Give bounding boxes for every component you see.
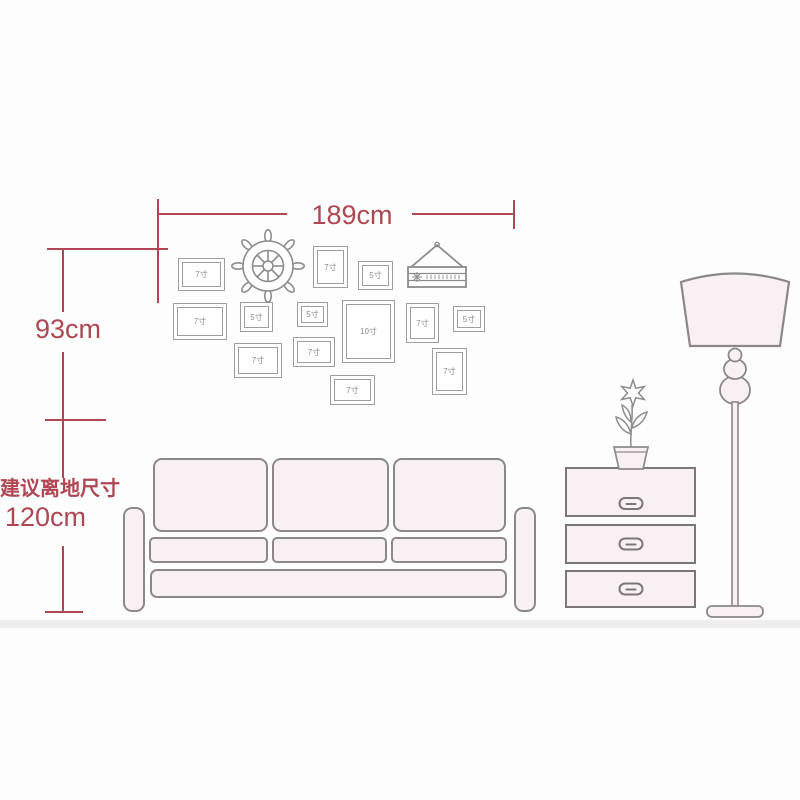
frame-size-label: 7寸 [194,316,206,327]
clearance-dim-line-upper [62,421,64,478]
clearance-dim-tick-bottom [45,611,83,613]
photo-frame-mat: 7寸 [410,307,435,339]
sofa-base [150,569,507,598]
photo-frame: 5寸 [453,306,485,332]
drawer-handle [618,583,643,596]
clearance-dim-line-lower [62,546,64,612]
sofa-back-cushion-left [153,458,268,532]
photo-frame-mat: 7寸 [177,307,223,336]
frame-size-label: 7寸 [308,347,320,358]
width-dim-tick-right [513,200,515,229]
photo-frame: 5寸 [240,302,273,332]
photo-frame-mat: 5寸 [362,265,389,286]
ship-wheel-icon [231,228,305,306]
photo-frame: 7寸 [293,337,335,367]
floor-lamp-icon [675,262,795,622]
floor-line [0,620,800,628]
photo-frame-mat: 5寸 [244,306,269,328]
photo-frame-mat: 7寸 [334,379,371,401]
sofa-back-cushion-middle [272,458,389,532]
photo-frame: 7寸 [234,343,282,378]
floor-clearance-title: 建议离地尺寸 [0,479,128,499]
photo-frame: 7寸 [313,246,348,288]
frame-size-label: 5寸 [369,270,381,281]
photo-frame: 5寸 [358,261,393,290]
potted-flower-icon [600,378,660,473]
photo-frame: 7寸 [178,258,225,291]
sofa-seat-cushion-left [149,537,268,563]
handle-slot [625,543,636,545]
frame-size-label: 7寸 [416,318,428,329]
photo-frame: 7寸 [173,303,227,340]
sofa-armrest-right [514,507,536,612]
frame-size-label: 10寸 [360,326,377,337]
photo-frame-mat: 7寸 [317,250,344,284]
photo-frame: 7寸 [432,348,467,395]
floor-clearance-value: 120cm [5,504,128,531]
width-dimension-label: 189cm [310,202,394,229]
width-dim-line-right [412,213,515,215]
height-dim-tick-top [47,248,168,250]
photo-frame: 7寸 [406,303,439,343]
sofa-back-cushion-right [393,458,506,532]
photo-frame: 10寸 [342,300,395,363]
width-dim-tick-left [157,199,159,303]
frame-size-label: 7寸 [324,262,336,273]
photo-frame-mat: 7寸 [436,352,463,391]
frame-size-label: 5寸 [463,314,475,325]
handle-slot [625,503,636,505]
photo-frame-mat: 7寸 [297,341,331,363]
photo-frame-mat: 7寸 [238,347,278,374]
drawer-handle [618,538,643,551]
photo-frame-mat: 5寸 [301,306,324,323]
frame-size-label: 5寸 [306,309,318,320]
sofa-armrest-left [123,507,145,612]
photo-frame-mat: 10寸 [346,304,391,359]
photo-frame: 7寸 [330,375,375,405]
sofa-seat-cushion-middle [272,537,387,563]
photo-frame-mat: 7寸 [182,262,221,287]
photo-frame-mat: 5寸 [457,310,481,328]
floor-clearance-label: 建议离地尺寸 120cm [0,479,128,531]
width-dim-line-left [159,213,287,215]
frame-size-label: 5寸 [250,312,262,323]
height-dimension-label: 93cm [35,316,101,343]
sofa-seat-cushion-right [391,537,507,563]
frame-size-label: 7寸 [252,355,264,366]
handle-slot [625,588,636,590]
product-dimension-diagram: 189cm 93cm 建议离地尺寸 120cm 7寸7寸5寸7寸5寸5寸10寸7… [0,0,800,800]
hanging-board-icon [404,240,470,292]
frame-size-label: 7寸 [346,385,358,396]
height-dim-line-lower [62,352,64,420]
frame-size-label: 7寸 [443,366,455,377]
height-dim-line-upper [62,250,64,312]
height-dim-tick-bottom [45,419,106,421]
frame-size-label: 7寸 [195,269,207,280]
drawer-handle [618,497,643,510]
